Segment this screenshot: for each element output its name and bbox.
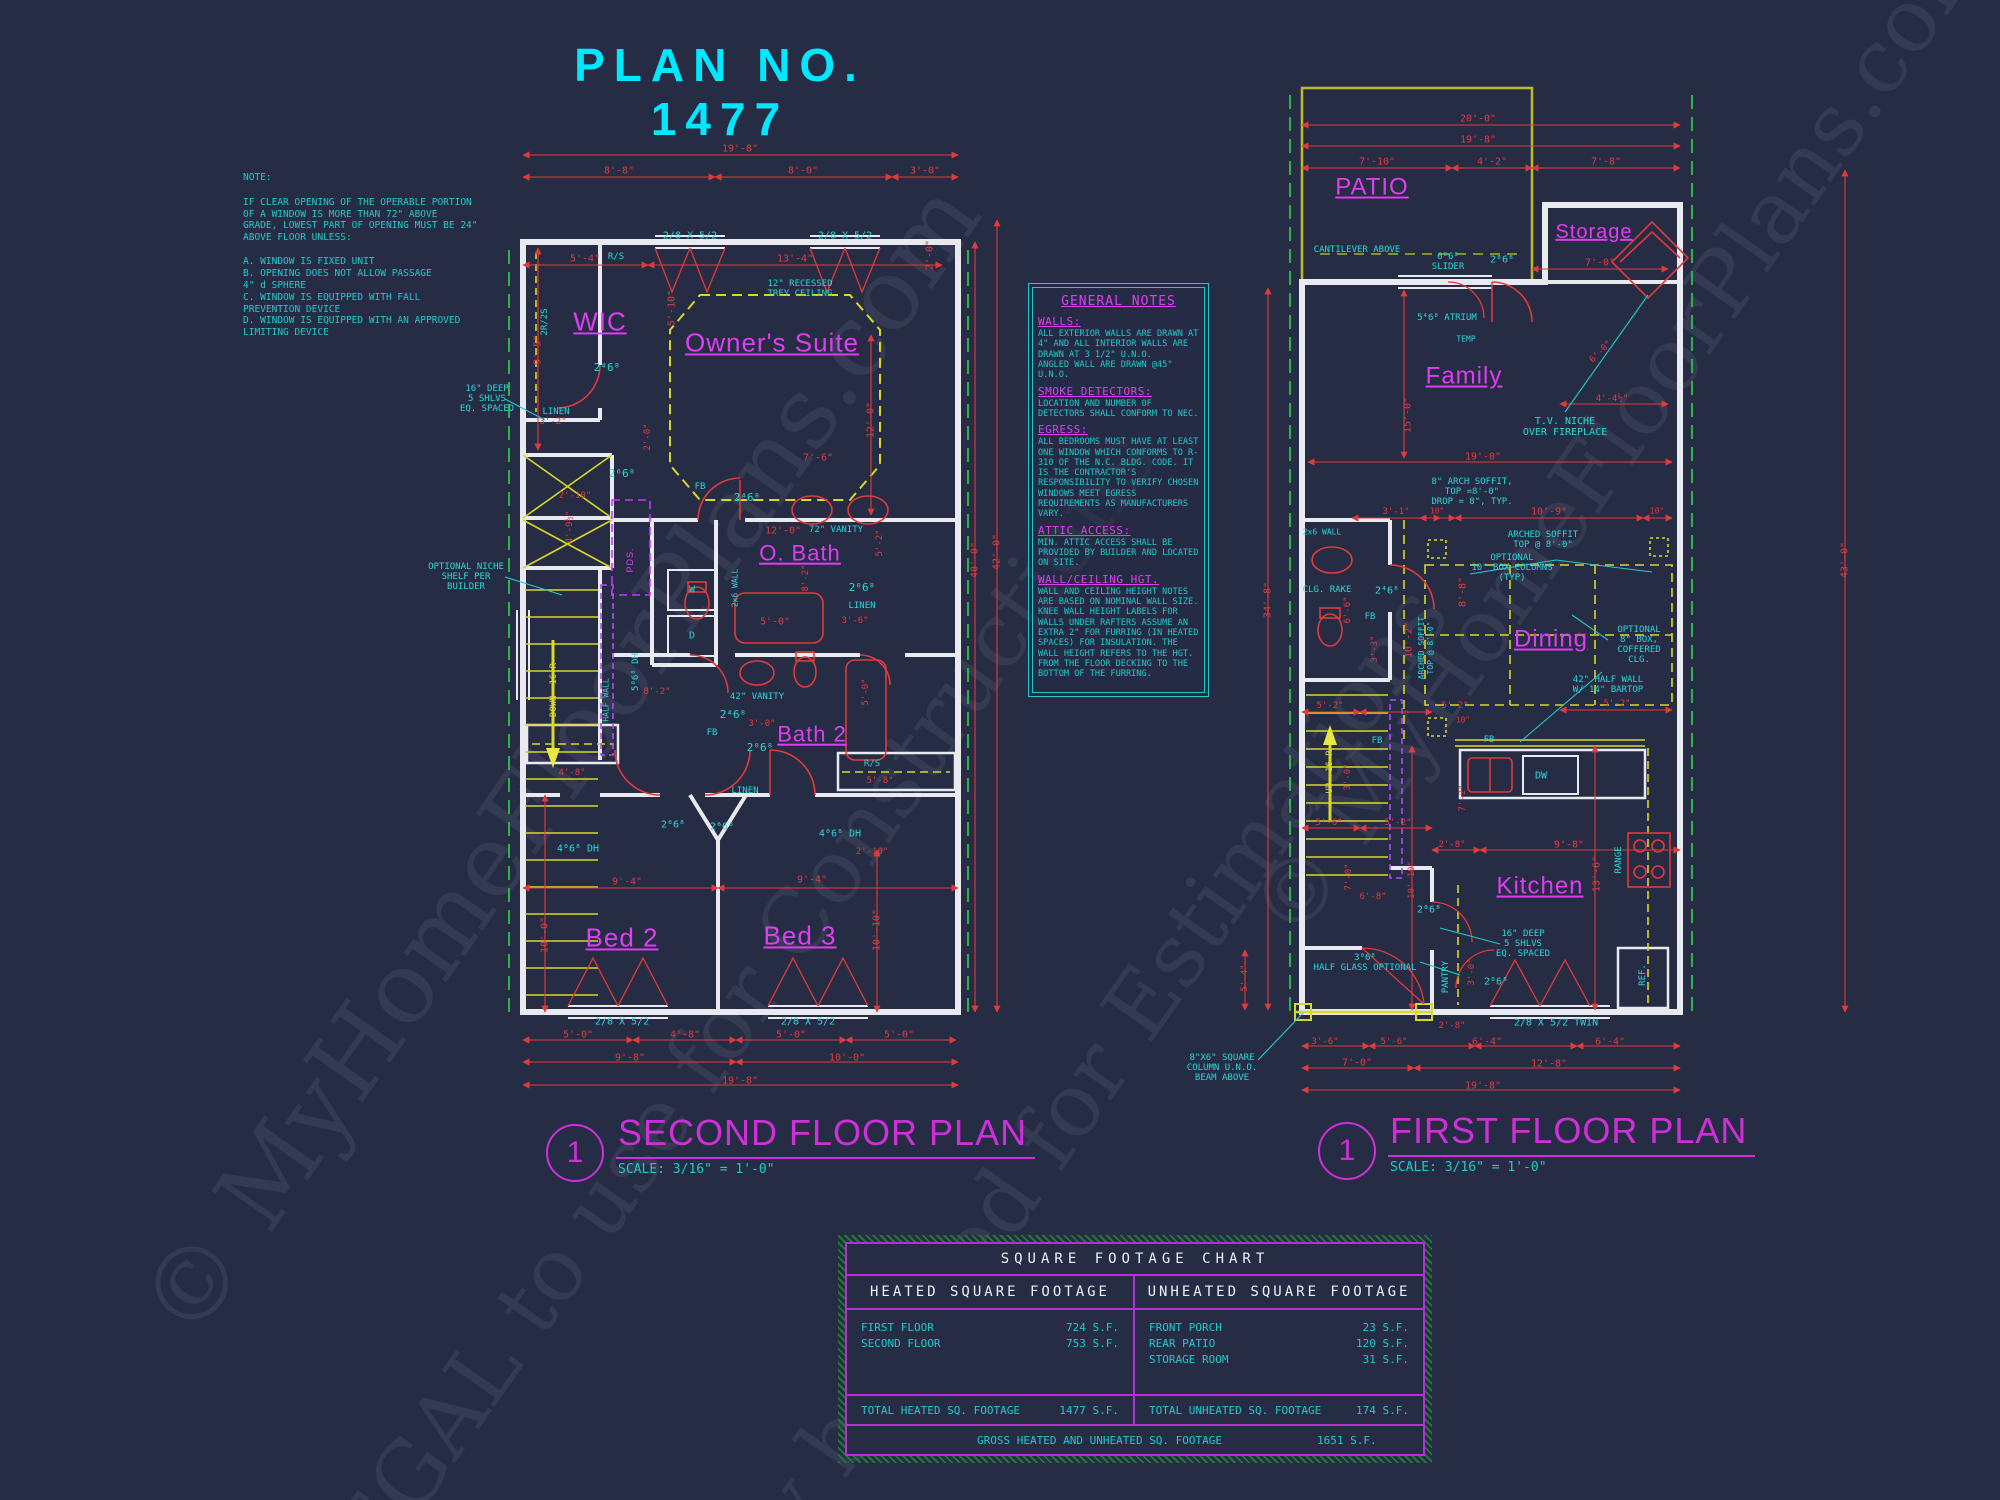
plan-number-badge: 1: [1318, 1122, 1376, 1180]
sqft-row: STORAGE ROOM31 S.F.: [1149, 1352, 1409, 1368]
gross-total-row: GROSS HEATED AND UNHEATED SQ. FOOTAGE 16…: [847, 1424, 1423, 1454]
second-floor-magenta-dashed: [601, 500, 650, 755]
sqft-chart-title: SQUARE FOOTAGE CHART: [847, 1244, 1423, 1276]
sqft-row: FRONT PORCH23 S.F.: [1149, 1320, 1409, 1336]
general-notes-heading: WALLS:: [1038, 315, 1199, 328]
sqft-row-value: 724 S.F.: [1066, 1320, 1119, 1336]
first-floor-walls: [1302, 88, 1680, 1018]
unheated-total-label: TOTAL UNHEATED SQ. FOOTAGE: [1149, 1404, 1321, 1417]
general-notes-body: LOCATION AND NUMBER OF DETECTORS SHALL C…: [1038, 399, 1199, 420]
unheated-total-row: TOTAL UNHEATED SQ. FOOTAGE 174 S.F.: [1135, 1394, 1423, 1424]
general-notes-sections: WALLS:ALL EXTERIOR WALLS ARE DRAWN AT 4"…: [1038, 315, 1199, 679]
first-floor-yellow-details: [1295, 254, 1672, 1020]
sqft-row-value: 120 S.F.: [1356, 1336, 1409, 1352]
first-floor-leaders: [1258, 295, 1652, 1060]
plan-title-text: FIRST FLOOR PLAN: [1388, 1110, 1755, 1157]
general-notes-title: GENERAL NOTES: [1038, 294, 1199, 309]
gross-total-value: 1651 S.F.: [1317, 1434, 1377, 1447]
first-floor-fixtures: [1312, 222, 1688, 1006]
second-floor-plan-title-block: 1 SECOND FLOOR PLAN SCALE: 3/16" = 1'-0": [546, 1112, 1035, 1182]
heated-rows: FIRST FLOOR724 S.F.SECOND FLOOR753 S.F.: [847, 1310, 1133, 1394]
second-floor-yellow-details: [523, 252, 950, 995]
sqft-row-label: REAR PATIO: [1149, 1336, 1215, 1352]
sqft-row: REAR PATIO120 S.F.: [1149, 1336, 1409, 1352]
sqft-row-value: 31 S.F.: [1363, 1352, 1409, 1368]
sqft-row-label: SECOND FLOOR: [861, 1336, 940, 1352]
window-note-heading: NOTE:: [243, 172, 543, 184]
sqft-row-label: FRONT PORCH: [1149, 1320, 1222, 1336]
heated-total-label: TOTAL HEATED SQ. FOOTAGE: [861, 1404, 1020, 1417]
general-notes-heading: WALL/CEILING HGT.: [1038, 573, 1199, 586]
unheated-total-value: 174 S.F.: [1356, 1404, 1409, 1417]
heated-total-row: TOTAL HEATED SQ. FOOTAGE 1477 S.F.: [847, 1394, 1133, 1424]
window-note-body: IF CLEAR OPENING OF THE OPERABLE PORTION…: [243, 197, 543, 340]
plan-number-badge: 1: [546, 1124, 604, 1182]
page-title: PLAN NO. 1477: [500, 38, 940, 146]
first-floor-plan-title-block: 1 FIRST FLOOR PLAN SCALE: 3/16" = 1'-0": [1318, 1110, 1755, 1180]
stair-up-arrowhead: [1323, 725, 1337, 745]
plan-number: 1: [567, 1136, 584, 1170]
general-notes-heading: SMOKE DETECTORS:: [1038, 385, 1199, 398]
plan-scale-text: SCALE: 3/16" = 1'-0": [1388, 1160, 1755, 1175]
second-floor-fixtures: [557, 248, 890, 1006]
second-floor-walls: [517, 236, 958, 1018]
sqft-row-label: STORAGE ROOM: [1149, 1352, 1228, 1368]
sqft-row: FIRST FLOOR724 S.F.: [861, 1320, 1119, 1336]
heated-header: HEATED SQUARE FOOTAGE: [847, 1276, 1133, 1310]
general-notes-box: GENERAL NOTES WALLS:ALL EXTERIOR WALLS A…: [1028, 283, 1209, 697]
unheated-rows: FRONT PORCH23 S.F.REAR PATIO120 S.F.STOR…: [1135, 1310, 1423, 1394]
heated-total-value: 1477 S.F.: [1059, 1404, 1119, 1417]
general-notes-body: ALL EXTERIOR WALLS ARE DRAWN AT 4" AND A…: [1038, 329, 1199, 381]
plan-scale-text: SCALE: 3/16" = 1'-0": [616, 1162, 1035, 1177]
second-floor-property-lines: [509, 250, 968, 1015]
square-footage-chart: SQUARE FOOTAGE CHART HEATED SQUARE FOOTA…: [838, 1235, 1432, 1463]
gross-total-label: GROSS HEATED AND UNHEATED SQ. FOOTAGE: [977, 1434, 1222, 1447]
sqft-row-value: 753 S.F.: [1066, 1336, 1119, 1352]
stair-down-arrowhead: [546, 748, 560, 768]
plan-title-text: SECOND FLOOR PLAN: [616, 1112, 1035, 1159]
first-floor-magenta-dashed: [1390, 700, 1402, 878]
general-notes-heading: EGRESS:: [1038, 423, 1199, 436]
unheated-header: UNHEATED SQUARE FOOTAGE: [1135, 1276, 1423, 1310]
sqft-row-value: 23 S.F.: [1363, 1320, 1409, 1336]
plan-number: 1: [1339, 1134, 1356, 1168]
sqft-row: SECOND FLOOR753 S.F.: [861, 1336, 1119, 1352]
sqft-row-label: FIRST FLOOR: [861, 1320, 934, 1336]
window-egress-note: NOTE: IF CLEAR OPENING OF THE OPERABLE P…: [243, 160, 543, 351]
general-notes-body: WALL AND CEILING HEIGHT NOTES ARE BASED …: [1038, 587, 1199, 680]
blueprint-page: © MyHomeFloorPlans.comILLEGAL to use for…: [0, 0, 2000, 1500]
general-notes-heading: ATTIC ACCESS:: [1038, 524, 1199, 537]
general-notes-body: MIN. ATTIC ACCESS SHALL BE PROVIDED BY B…: [1038, 538, 1199, 569]
second-floor-dimension-lines: [523, 155, 997, 1085]
general-notes-body: ALL BEDROOMS MUST HAVE AT LEAST ONE WIND…: [1038, 437, 1199, 520]
